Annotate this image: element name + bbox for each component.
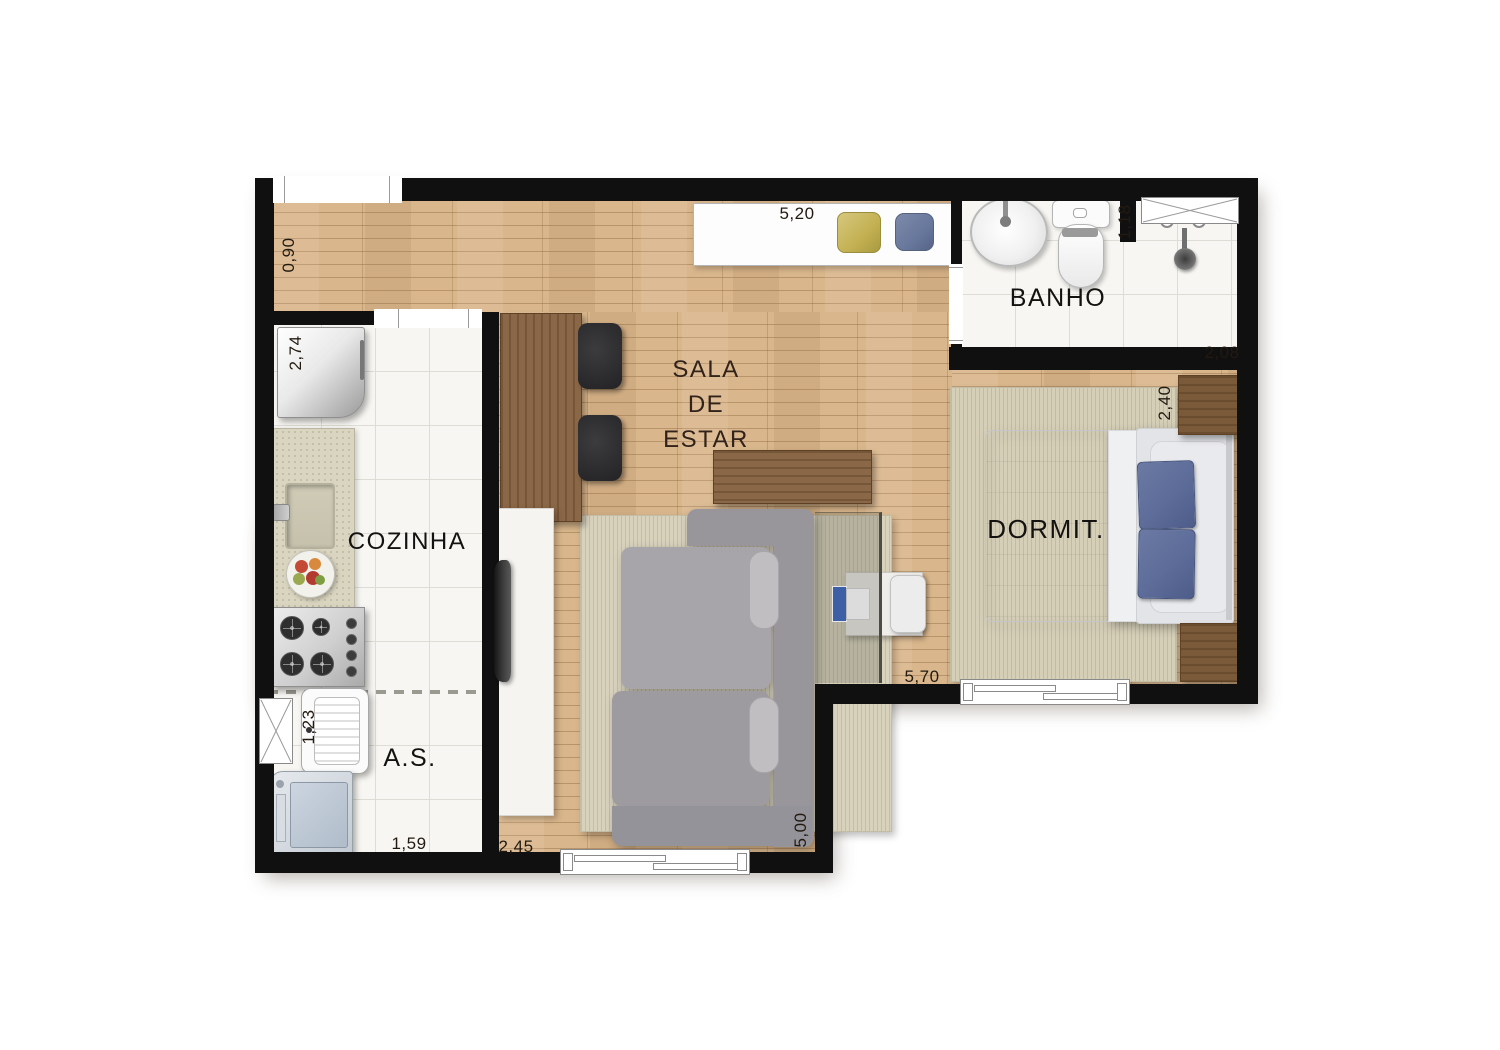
wall-right — [1237, 178, 1258, 704]
bathroom-label: BANHO — [998, 284, 1118, 313]
entry-opening — [273, 176, 402, 203]
dim-service-width: 1,59 — [369, 834, 449, 854]
washing-machine — [269, 771, 353, 856]
door-jamb — [949, 267, 963, 268]
dim-bath-niche: 1,18 — [1115, 182, 1135, 262]
fruit — [315, 575, 325, 585]
living-label-line1: SALA — [646, 352, 766, 387]
office-chair — [578, 415, 622, 481]
bathroom-door-opening — [949, 264, 963, 344]
floor-plan: SALA DE ESTAR COZINHA BANHO DORMIT. A.S.… — [0, 0, 1500, 1050]
tv-console — [713, 450, 872, 504]
slider-panel — [653, 863, 739, 870]
stove-burner — [280, 652, 304, 676]
nightstand — [1178, 375, 1238, 435]
wall-jog — [815, 684, 833, 873]
slider-panel — [574, 855, 666, 862]
kitchen-sink — [285, 483, 335, 549]
slider-panel — [974, 685, 1056, 692]
door-jamb — [949, 340, 963, 341]
slider-cap — [563, 853, 573, 871]
wall-tv — [494, 560, 511, 682]
decor-box-blue — [895, 213, 934, 251]
sofa-base — [612, 806, 812, 846]
kitchen-door-opening — [374, 309, 482, 328]
balcony-sliding-door — [560, 849, 750, 875]
laptop-screen — [832, 586, 847, 622]
fruit — [293, 573, 305, 585]
sofa-pillow — [749, 551, 779, 629]
stove-burner — [280, 616, 304, 640]
toilet-button — [1073, 208, 1087, 218]
door-jamb — [398, 309, 399, 328]
washer-knob — [276, 780, 284, 788]
sofa-pillow — [749, 697, 779, 773]
slider-cap — [1117, 683, 1127, 701]
door-jamb — [468, 309, 469, 328]
dim-corridor-width: 0,90 — [279, 215, 299, 295]
bathroom-window-icon — [1141, 197, 1239, 224]
office-desk — [500, 313, 582, 522]
dim-living-span: 5,70 — [882, 667, 962, 687]
sofa-back-top — [687, 509, 775, 546]
living-label-line2: DE — [646, 387, 766, 422]
door-jamb — [284, 176, 285, 203]
fruit — [295, 560, 308, 573]
slider-cap — [963, 683, 973, 701]
bathroom-sink — [970, 197, 1048, 267]
laptop-keyboard — [846, 588, 870, 620]
office-chair — [578, 323, 622, 389]
stove-knob — [346, 634, 357, 645]
bed-headboard — [1226, 430, 1232, 620]
bedroom-sliding-window — [960, 679, 1130, 705]
bedroom-label: DORMIT. — [986, 514, 1106, 545]
washer-panel — [276, 794, 286, 842]
dim-living-width: 2,45 — [476, 837, 556, 857]
dim-kitchen-depth: 2,74 — [286, 313, 306, 393]
sofa-chaise-cushion — [612, 691, 770, 806]
wall-top — [255, 178, 1258, 201]
shower-head-icon — [1174, 248, 1196, 270]
stove-knob — [346, 618, 357, 629]
stove-knob — [346, 650, 357, 661]
fridge-handle — [360, 340, 364, 380]
nightstand — [1180, 623, 1238, 682]
stove-knob — [346, 666, 357, 677]
stove — [271, 607, 365, 687]
slider-panel — [1043, 693, 1119, 700]
fruit-bowl — [286, 550, 335, 598]
pillow-blue — [1137, 460, 1196, 530]
dim-service-depth: 1,23 — [299, 687, 319, 767]
washer-door — [290, 782, 348, 848]
door-jamb — [389, 176, 390, 203]
laundry-tub-basin — [314, 697, 360, 765]
dim-bedroom-depth: 2,40 — [1155, 363, 1175, 443]
kitchen-label: COZINHA — [347, 528, 467, 556]
dim-living-depth: 5,00 — [791, 790, 811, 870]
sofa — [612, 509, 814, 846]
fruit — [309, 558, 321, 570]
bed-sheet-fold — [1108, 430, 1138, 622]
stove-burner — [310, 652, 334, 676]
sink-drain-icon — [1000, 216, 1011, 227]
slider-cap — [737, 853, 747, 871]
living-room-label: SALA DE ESTAR — [646, 352, 766, 457]
service-window-icon — [259, 698, 293, 764]
toilet-seat-hinge — [1062, 228, 1098, 237]
desk-chair — [890, 575, 926, 633]
pillow-blue — [1137, 529, 1195, 600]
decor-box-yellow — [837, 212, 881, 253]
stove-burner — [312, 618, 330, 636]
living-label-line3: ESTAR — [646, 422, 766, 457]
wall-kitchen-top — [268, 311, 378, 325]
wall-bathroom-left — [951, 178, 962, 266]
wall-left — [255, 178, 274, 873]
service-label: A.S. — [370, 744, 450, 773]
dim-top-span: 5,20 — [757, 204, 837, 224]
dim-bath-width: 2,08 — [1182, 343, 1262, 363]
